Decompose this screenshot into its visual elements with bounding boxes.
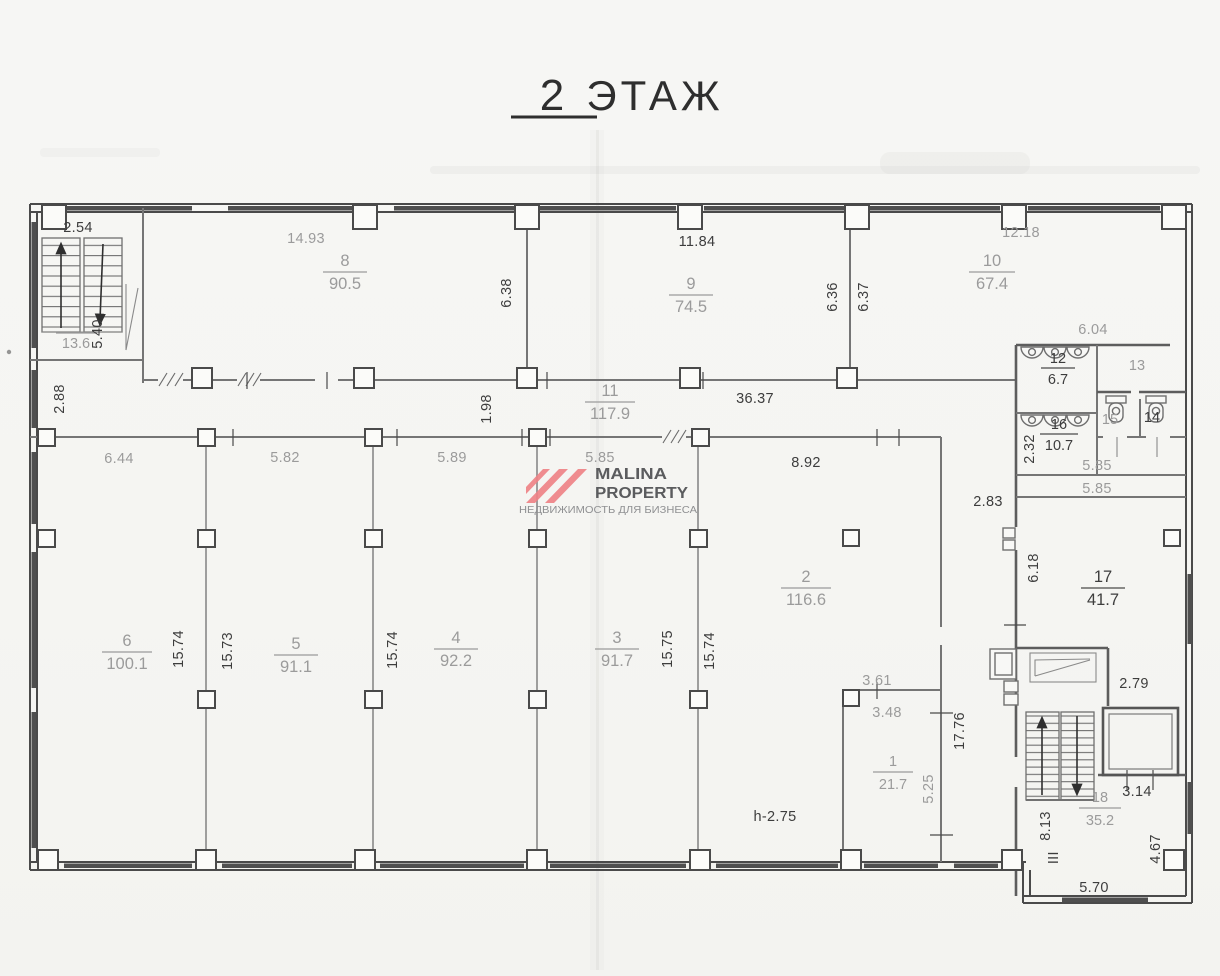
svg-text:12: 12 — [1050, 351, 1066, 367]
svg-text:35.2: 35.2 — [1086, 813, 1114, 829]
dim-5-82: 5.82 — [270, 450, 299, 466]
dim-1-98: 1.98 — [479, 394, 495, 423]
dim-4-67: 4.67 — [1148, 834, 1164, 863]
svg-text:91.7: 91.7 — [601, 652, 633, 670]
svg-text:9: 9 — [686, 275, 695, 293]
room-label-1: 121.7 — [873, 754, 913, 793]
title-floor-number: 2 — [540, 71, 564, 120]
room-label-2: 2116.6 — [781, 568, 831, 609]
svg-text:117.9: 117.9 — [590, 405, 630, 423]
dim-2-54: 2.54 — [63, 220, 92, 236]
stairwell-bottom-right — [990, 649, 1178, 800]
watermark-tagline: НЕДВИЖИМОСТЬ ДЛЯ БИЗНЕСА — [519, 504, 697, 516]
dim-12-18: 12.18 — [1002, 225, 1040, 241]
dim-6-04: 6.04 — [1078, 322, 1107, 338]
svg-text:16: 16 — [1051, 417, 1067, 433]
svg-text:4: 4 — [451, 629, 460, 647]
dim-8-92: 8.92 — [791, 455, 820, 471]
svg-text:90.5: 90.5 — [329, 275, 361, 293]
scanned-floorplan-page: 2 ЭТАЖ — [0, 0, 1220, 976]
room-label-14: 14 — [1144, 410, 1160, 426]
dim-6-37: 6.37 — [856, 282, 872, 311]
room-label-5: 591.1 — [274, 635, 318, 676]
svg-text:91.1: 91.1 — [280, 658, 312, 676]
dim-17-76: 17.76 — [952, 712, 968, 750]
door-hatch-vestibule — [159, 373, 183, 386]
svg-text:74.5: 74.5 — [675, 298, 707, 316]
outer-walls — [30, 204, 1192, 903]
svg-text:13.6: 13.6 — [62, 336, 90, 352]
level-mark-iii: III — [1044, 852, 1060, 865]
watermark: MALINA PROPERTY НЕДВИЖИМОСТЬ ДЛЯ БИЗНЕСА — [519, 466, 697, 516]
elevator-shaft — [1103, 708, 1178, 775]
dim-2-88: 2.88 — [52, 384, 68, 413]
room-label-8: 890.5 — [323, 252, 367, 293]
ramp-symbol-lobby — [1030, 653, 1096, 682]
room-label-10: 1067.4 — [969, 252, 1015, 293]
title-block: 2 ЭТАЖ — [511, 71, 724, 120]
watermark-brand-line2: PROPERTY — [595, 485, 688, 502]
dim-5-85-c: 5.85 — [585, 450, 614, 466]
room-label-15: 15 — [1102, 412, 1118, 428]
svg-text:21.7: 21.7 — [879, 777, 907, 793]
door-hatch-corridor-mid — [663, 430, 686, 443]
dim-5-89: 5.89 — [437, 450, 466, 466]
scan-artifacts — [7, 130, 1200, 970]
svg-text:11: 11 — [601, 382, 618, 400]
duct-shaft — [990, 649, 1018, 705]
room-labels: 890.5 974.5 1067.4 11117.9 126.7 13 15 1… — [56, 252, 1160, 829]
room-label-13: 13 — [1129, 358, 1145, 374]
partition-walls — [30, 208, 1186, 896]
malina-logo-icon — [526, 469, 587, 503]
dim-2-32: 2.32 — [1022, 434, 1038, 463]
dim-5-40: 5.40 — [90, 319, 106, 348]
dim-14-93: 14.93 — [287, 231, 325, 247]
svg-text:41.7: 41.7 — [1087, 591, 1119, 609]
title-floor-word: ЭТАЖ — [586, 72, 723, 119]
door-symbols — [159, 372, 1153, 835]
watermark-brand-line1: MALINA — [595, 466, 668, 483]
svg-text:116.6: 116.6 — [786, 591, 826, 609]
room-label-4: 492.2 — [434, 629, 478, 670]
svg-text:5: 5 — [291, 635, 300, 653]
room-label-9: 974.5 — [669, 275, 713, 316]
door-hatch-corridor-left — [238, 373, 261, 386]
dim-6-36: 6.36 — [825, 282, 841, 311]
dim-6-38: 6.38 — [499, 278, 515, 307]
dim-15-74-c: 15.74 — [702, 632, 718, 670]
dim-8-13: 8.13 — [1038, 811, 1054, 840]
dim-15-74-a: 15.74 — [171, 630, 187, 668]
svg-text:8: 8 — [340, 252, 349, 270]
svg-text:10: 10 — [983, 252, 1001, 270]
svg-text:3: 3 — [612, 629, 621, 647]
dim-15-74-b: 15.74 — [385, 631, 401, 669]
svg-text:6.7: 6.7 — [1048, 372, 1068, 388]
dim-5-85-a: 5.85 — [1082, 458, 1111, 474]
svg-text:2: 2 — [801, 568, 810, 586]
dim-15-75: 15.75 — [660, 630, 676, 668]
svg-text:92.2: 92.2 — [440, 652, 472, 670]
dim-15-73: 15.73 — [220, 632, 236, 670]
room-label-17: 1741.7 — [1081, 568, 1125, 609]
svg-text:100.1: 100.1 — [106, 655, 147, 673]
dim-36-37: 36.37 — [736, 391, 774, 407]
svg-text:10.7: 10.7 — [1045, 438, 1073, 454]
dim-height-note: h-2.75 — [754, 809, 797, 825]
svg-text:17: 17 — [1094, 568, 1112, 586]
room-label-6: 6100.1 — [102, 632, 152, 673]
svg-text:18: 18 — [1092, 790, 1108, 806]
dim-2-83: 2.83 — [973, 494, 1002, 510]
room-label-12: 126.7 — [1041, 351, 1075, 388]
svg-text:67.4: 67.4 — [976, 275, 1008, 293]
dim-5-25: 5.25 — [921, 774, 937, 803]
double-door-leaves — [1003, 528, 1015, 550]
svg-text:1: 1 — [889, 754, 897, 770]
floorplan-svg: 2 ЭТАЖ — [0, 0, 1220, 976]
dimension-labels: 2.54 14.93 11.84 12.18 6.38 6.36 6.37 5.… — [52, 220, 1164, 896]
ramp-symbol-top-left — [126, 284, 138, 350]
dim-11-84: 11.84 — [679, 234, 716, 250]
dim-3-48: 3.48 — [872, 705, 901, 721]
dim-6-44: 6.44 — [104, 451, 133, 467]
dim-2-79: 2.79 — [1119, 676, 1148, 692]
dim-3-61: 3.61 — [862, 673, 891, 689]
dim-6-18: 6.18 — [1026, 553, 1042, 582]
dim-3-14: 3.14 — [1122, 784, 1151, 800]
dim-5-70: 5.70 — [1079, 880, 1108, 896]
dim-5-85-b: 5.85 — [1082, 481, 1111, 497]
svg-text:6: 6 — [122, 632, 131, 650]
